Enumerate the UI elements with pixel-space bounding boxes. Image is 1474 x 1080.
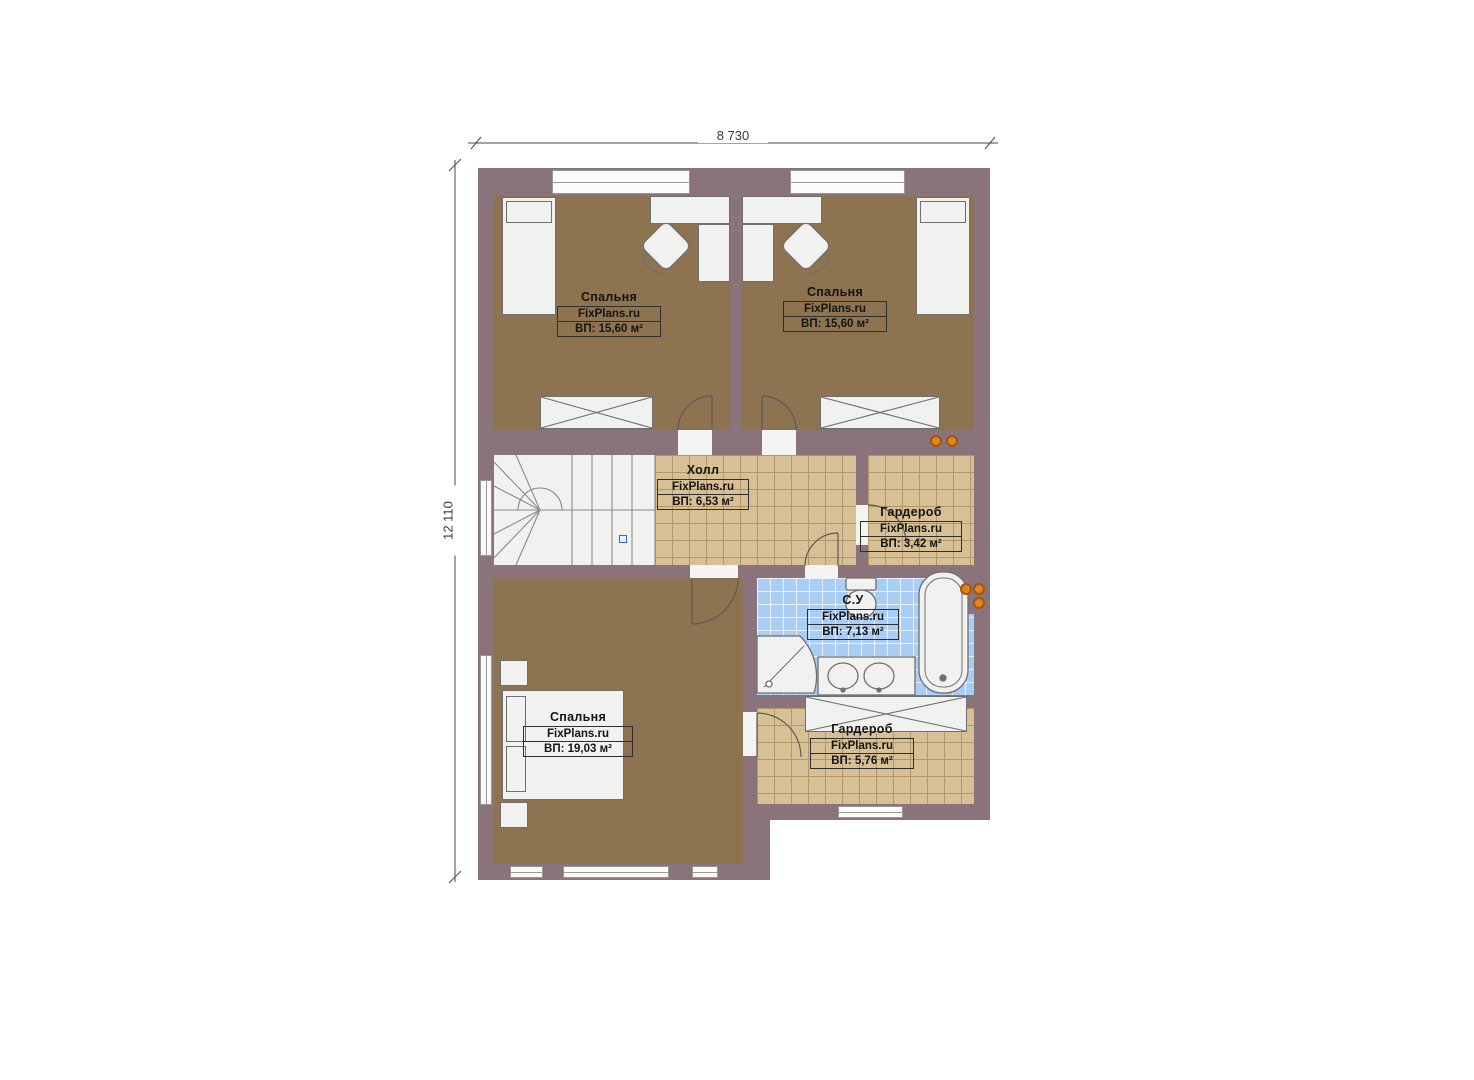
watermark-text: FixPlans.ru	[861, 522, 961, 536]
window-stairs-left	[480, 480, 492, 556]
room-info-box: FixPlans.ru ВП: 3,42 м²	[860, 521, 962, 552]
door-opening-bedroom-bottom	[690, 565, 738, 578]
room-info-box: FixPlans.ru ВП: 7,13 м²	[807, 609, 899, 640]
room-area: ВП: 19,03 м²	[524, 741, 632, 756]
watermark-text: FixPlans.ru	[658, 480, 748, 494]
watermark-text: FixPlans.ru	[558, 307, 660, 321]
room-name: Гардероб	[860, 505, 962, 519]
room-label-wardrobe-right: Гардероб FixPlans.ru ВП: 3,42 м²	[860, 505, 962, 552]
window-bottom-1	[510, 866, 543, 878]
dimension-width-label: 8 730	[698, 128, 768, 143]
room-label-wardrobe-bottom: Гардероб FixPlans.ru ВП: 5,76 м²	[810, 722, 914, 769]
room-info-box: FixPlans.ru ВП: 15,60 м²	[783, 301, 887, 332]
dimension-height-label: 12 110	[441, 486, 456, 556]
room-name: Спальня	[783, 285, 887, 299]
door-opening-bedroom-top-left	[678, 430, 712, 455]
room-name: Холл	[657, 463, 749, 477]
room-area: ВП: 3,42 м²	[861, 536, 961, 551]
pillow-top-left	[506, 201, 552, 223]
radiator-icon	[930, 435, 942, 447]
window-top-right	[790, 170, 905, 194]
room-label-bedroom-top-left: Спальня FixPlans.ru ВП: 15,60 м²	[557, 290, 661, 337]
window-top-left	[552, 170, 690, 194]
radiator-icon	[946, 435, 958, 447]
door-opening-bathroom	[805, 565, 838, 578]
door-opening-wardrobe-bottom	[743, 712, 757, 756]
room-info-box: FixPlans.ru ВП: 19,03 м²	[523, 726, 633, 757]
wall-divider-bedrooms	[730, 196, 742, 430]
closet-top-left	[540, 396, 653, 429]
wall-step	[755, 804, 770, 880]
desk-top-left-a	[650, 196, 730, 224]
desk-top-right-b	[742, 224, 774, 282]
radiator-icon	[960, 583, 972, 595]
room-label-bedroom-bottom: Спальня FixPlans.ru ВП: 19,03 м²	[523, 710, 633, 757]
room-name: Спальня	[523, 710, 633, 724]
radiator-icon	[973, 597, 985, 609]
room-info-box: FixPlans.ru ВП: 6,53 м²	[657, 479, 749, 510]
radiator-icon	[973, 583, 985, 595]
room-area: ВП: 7,13 м²	[808, 624, 898, 639]
window-bottom-3	[692, 866, 718, 878]
room-label-bathroom: С.У FixPlans.ru ВП: 7,13 м²	[807, 593, 899, 640]
room-label-hall: Холл FixPlans.ru ВП: 6,53 м²	[657, 463, 749, 510]
window-bottom-2	[563, 866, 669, 878]
watermark-text: FixPlans.ru	[524, 727, 632, 741]
nightstand-top	[500, 660, 528, 686]
floor-plan-canvas: 8 730 12 110 Спальня FixPlans.ru ВП: 15,…	[0, 0, 1474, 1080]
room-name: Гардероб	[810, 722, 914, 736]
window-bedroom-left	[480, 655, 492, 805]
floor-staircase	[494, 455, 655, 565]
pillow-top-right	[920, 201, 966, 223]
watermark-text: FixPlans.ru	[784, 302, 886, 316]
room-info-box: FixPlans.ru ВП: 15,60 м²	[557, 306, 661, 337]
room-area: ВП: 15,60 м²	[558, 321, 660, 336]
room-info-box: FixPlans.ru ВП: 5,76 м²	[810, 738, 914, 769]
room-area: ВП: 15,60 м²	[784, 316, 886, 331]
window-wardrobe-bottom	[838, 806, 903, 818]
room-name: Спальня	[557, 290, 661, 304]
nightstand-bottom	[500, 802, 528, 828]
door-opening-bedroom-top-right	[762, 430, 796, 455]
watermark-text: FixPlans.ru	[808, 610, 898, 624]
room-name: С.У	[807, 593, 899, 607]
room-area: ВП: 6,53 м²	[658, 494, 748, 509]
stairs-section-marker	[619, 535, 627, 543]
room-label-bedroom-top-right: Спальня FixPlans.ru ВП: 15,60 м²	[783, 285, 887, 332]
watermark-text: FixPlans.ru	[811, 739, 913, 753]
wall-right	[974, 168, 990, 820]
desk-top-left-b	[698, 224, 730, 282]
wall-bedrooms-hall	[494, 430, 974, 455]
desk-top-right-a	[742, 196, 822, 224]
room-area: ВП: 5,76 м²	[811, 753, 913, 768]
closet-top-right	[820, 396, 940, 429]
